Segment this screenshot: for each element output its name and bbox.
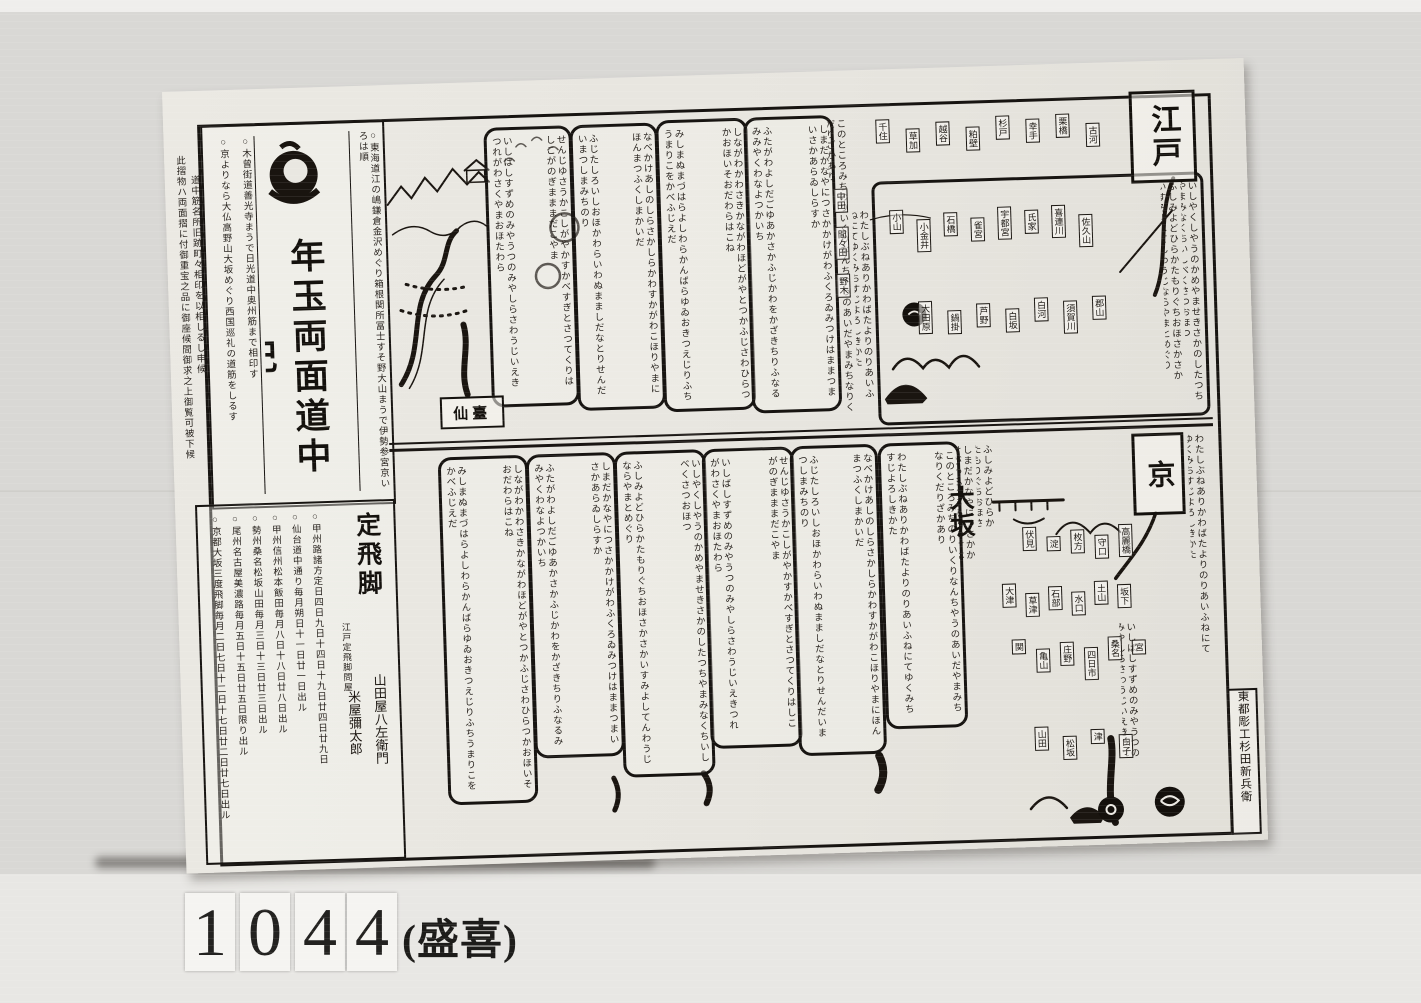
map-title: 年玉両面道中記 bbox=[261, 218, 338, 498]
station-box: 郡山 bbox=[1092, 295, 1107, 319]
route-column: しまだかなやにつさかかけがわふくろゐみつけはままつまいさかあらゐしらすか ふたが… bbox=[526, 452, 626, 759]
photo-of-historical-map: 此摺物ハ両面摺に付御重宝之品に御座候間御求之上御覧可被下候 道中筋名所旧跡町々相… bbox=[0, 0, 1421, 1003]
station-box-row: 山田 松坂 津 白子 bbox=[1034, 724, 1133, 761]
catalog-digit-tile: 4 bbox=[295, 893, 345, 971]
station-box: 石橋 bbox=[943, 212, 958, 236]
station-box: 白河 bbox=[1034, 297, 1049, 321]
catalog-digit-tile: 1 bbox=[185, 893, 235, 971]
route-column-text: しまだかなやにつさかかけがわふくろゐみつけはままつまいさかあらゐしらすか bbox=[588, 461, 619, 748]
station-box-row: 大津 草津 石部 水口 土山 坂下 bbox=[1002, 580, 1132, 618]
station-box: 野木 bbox=[836, 273, 851, 297]
station-box: 守口 bbox=[1094, 534, 1109, 558]
osaka-label: 大坂 bbox=[941, 485, 980, 574]
station-box: 氏家 bbox=[1024, 210, 1039, 234]
sendai-label: 仙臺 bbox=[453, 401, 492, 423]
route-column-text: なべかけあしのしらさかしらかわすかがわこほりやまにほんまつふくしまかいだ bbox=[629, 132, 659, 401]
station-box: 関 bbox=[1012, 639, 1026, 654]
courier-block: 定飛脚 江戸定飛脚問屋 ○京都大坂三度飛脚毎月二日七日十二日十七日廿二日廿七日出… bbox=[195, 499, 406, 865]
station-box: 小山 bbox=[889, 210, 904, 234]
route-column: なべかけあしのしらさかしらかわすかがわこほりやまにほんまつふくしまかいだ ふじた… bbox=[789, 444, 887, 757]
station-box: 草加 bbox=[906, 128, 921, 152]
route-column-text: ふたがわよしだごゆあかさかふじかわをかざきちりふなるみみやくわなよつかいち bbox=[749, 126, 780, 405]
station-box: 千住 bbox=[875, 119, 890, 143]
edo-label-box: 江戸 bbox=[1128, 90, 1197, 184]
station-box: 淀 bbox=[1046, 536, 1060, 551]
title-block: ○東海道江の嶋鎌倉金沢めぐり箱根関所冨士すそ野大山まうで伊勢参宮京いろは順 ○京… bbox=[200, 120, 396, 510]
station-box-row: 伏見 淀 枚方 守口 高麗橋 bbox=[1022, 524, 1133, 561]
station-box: 水口 bbox=[1071, 591, 1086, 615]
station-box: 越谷 bbox=[935, 121, 950, 145]
station-box: 杉戸 bbox=[995, 115, 1010, 139]
route-column-text: なべかけあしのしらさかしらかわすかがわこほりやまにほんまつふくしまかいだ bbox=[850, 453, 881, 746]
station-box-row: 千住 草加 越谷 粕壁 杉戸 幸手 栗橋 古河 bbox=[875, 113, 1100, 154]
edo-subframe: 小山 小金井 石橋 雀宮 宇都宮 氏家 喜連川 佐久山 大田原 鍋掛 芦野 白坂… bbox=[871, 171, 1211, 425]
catalog-digit-tile: 0 bbox=[240, 893, 290, 971]
station-box: 土山 bbox=[1094, 581, 1109, 605]
route-column: しながわかわさきかながわほどがやとつかふじさわひらつかおほいそおだわらはこね み… bbox=[438, 455, 539, 806]
route-column-text: みしまぬまづはらよしわらかんばらゆゐおきつえじりふちうまりこをかべふじえだ bbox=[444, 466, 476, 797]
catalog-annotation: (盛喜) bbox=[402, 906, 518, 967]
station-box: 枚方 bbox=[1070, 529, 1085, 553]
route-column-text: ふしみよどひらかたもりぐちおほさかさかいすみよしてんわうじならやまとめぐり bbox=[620, 460, 652, 769]
kyoto-label-box: 京 bbox=[1131, 432, 1186, 516]
station-box: 大津 bbox=[1002, 583, 1017, 607]
station-box: 宇都宮 bbox=[997, 206, 1012, 239]
route-column-text: ふたがわよしだごゆあかさかふじかわをかざきちりふなるみみやくわなよつかいち bbox=[532, 463, 563, 750]
title-side-note: ○東海道江の嶋鎌倉金沢めぐり箱根関所冨士すそ野大山まうで伊勢参宮京いろは順 bbox=[348, 130, 389, 491]
route-column-text: ふじたしろいしおほかわらいわぬまましだなとりせんだいまつしまみちのり bbox=[796, 455, 827, 748]
route-column: なべかけあしのしらさかしらかわすかがわこほりやまにほんまつふくしまかいだ ふじた… bbox=[569, 122, 666, 411]
station-box-row: 関 亀山 庄野 四日市 桑名 宮 bbox=[1012, 635, 1147, 682]
route-text: ふしみよどひらかたもりぐちおほさかさかいすみよしてんわうじならやまとめぐり bbox=[975, 444, 994, 536]
station-box: 桑名 bbox=[1108, 636, 1123, 660]
route-text: ふしみよどひらかたもりぐちおほさかさかいすみよしてんわうじならやまとめぐり bbox=[1160, 181, 1182, 381]
station-box: 間々田 bbox=[835, 227, 850, 260]
station-box: 白子 bbox=[1119, 734, 1134, 758]
kyoto-label: 京 bbox=[1138, 459, 1179, 488]
station-box: 津 bbox=[1090, 729, 1104, 744]
station-box: 大田原 bbox=[918, 301, 933, 334]
station-box: 石部 bbox=[1048, 586, 1063, 610]
station-box: 喜連川 bbox=[1051, 205, 1066, 238]
route-text: いしやくしやうのかめやませきさかのしたつちやまみなくちいしべくさつおほつ bbox=[1180, 181, 1203, 405]
route-column: しまだかなやにつさかかけがわふくろゐみつけはままつまいさかあらゐしらすか ふたが… bbox=[743, 115, 842, 414]
edo-label: 江戸 bbox=[1140, 103, 1186, 170]
station-box: 鍋掛 bbox=[947, 310, 962, 334]
station-box: 四日市 bbox=[1084, 647, 1099, 680]
station-box: 幸手 bbox=[1025, 118, 1040, 142]
route-column-text: わたしぶねありかわばたよりのりあいふねにてゆくみちすじよろしきかた bbox=[884, 452, 914, 721]
station-box: 須賀川 bbox=[1063, 300, 1078, 333]
catalog-digit: 4 bbox=[303, 893, 337, 972]
station-box: 山田 bbox=[1034, 726, 1049, 750]
colophon-text: 東都彫工杉田新兵衛 bbox=[1234, 690, 1254, 803]
title-crest-icon bbox=[260, 134, 326, 214]
catalog-digit-tile: 4 bbox=[347, 893, 397, 971]
route-column: せんじゆさうかこしがやかすかべすぎとさつてくりはしこがのぎまままだこやま いしば… bbox=[483, 125, 580, 408]
station-box: 芦野 bbox=[976, 303, 991, 327]
map-sheet: 此摺物ハ両面摺に付御重宝之品に御座候間御求之上御覧可被下候 道中筋名所旧跡町々相… bbox=[162, 58, 1268, 874]
station-box-row: 大田原 鍋掛 芦野 白坂 白河 須賀川 郡山 bbox=[918, 295, 1107, 338]
route-column-text: いしばしすずめのみやうつのみやしらさわうじいえきつれがわさくやまおほたわら bbox=[708, 457, 739, 740]
courier-name: 米屋彌太郎 bbox=[343, 690, 368, 851]
route-column-text: いしばしすずめのみやうつのみやしらさわうじいえきつれがわさくやまおほたわら bbox=[490, 136, 520, 399]
station-box: 粕壁 bbox=[965, 126, 980, 150]
route-column-text: せんじゆさうかこしがやかすかべすぎとさつてくりはしこがのぎまままだこやま bbox=[544, 134, 574, 397]
photo-top-margin bbox=[0, 0, 1421, 12]
station-box: 高麗橋 bbox=[1118, 524, 1133, 557]
catalog-digit: 4 bbox=[355, 893, 389, 972]
route-column-text: みしまぬまづはらよしわらかんばらゆゐおきつえじりふちうまりこをかべふじえだ bbox=[661, 129, 692, 404]
station-box: 松坂 bbox=[1063, 736, 1078, 760]
colophon-strip: 東都彫工杉田新兵衛 bbox=[1227, 688, 1262, 835]
station-box: 庄野 bbox=[1060, 642, 1075, 666]
courier-name: 山田屋八左衛門 bbox=[368, 673, 394, 854]
catalog-digit: 0 bbox=[248, 893, 282, 972]
station-box: 亀山 bbox=[1036, 648, 1051, 672]
station-box: 古河 bbox=[1085, 123, 1100, 147]
station-box: 白坂 bbox=[1005, 308, 1020, 332]
station-box: 坂下 bbox=[1117, 584, 1132, 608]
sendai-label-box: 仙臺 bbox=[440, 395, 505, 429]
courier-header: 定飛脚 bbox=[349, 511, 387, 630]
station-box: 宮 bbox=[1132, 639, 1146, 654]
route-column-text: ふじたしろいしおほかわらいわぬまましだなとりせんだいまつしまみちのり bbox=[576, 133, 606, 402]
station-box: 小金井 bbox=[916, 219, 931, 252]
route-column: いしやくしやうのかめやませきさかのしたつちやまみなくちいしべくさつおほつ ふしみ… bbox=[614, 449, 716, 778]
station-box: 中田 bbox=[833, 189, 848, 213]
station-box: 雀宮 bbox=[970, 217, 985, 241]
station-box: 栗橋 bbox=[1055, 114, 1070, 138]
route-column: せんじゆさうかこしがやかすかべすぎとさつてくりはしこがのぎまままだこやま いしば… bbox=[701, 446, 802, 749]
station-box: 伏見 bbox=[1022, 527, 1037, 551]
station-box-row: 小山 小金井 石橋 雀宮 宇都宮 氏家 喜連川 佐久山 bbox=[889, 204, 1093, 253]
station-box: 草津 bbox=[1025, 593, 1040, 617]
catalog-digit: 1 bbox=[193, 893, 227, 972]
route-column: しながわかわさきかながわほどがやとつかふじさわひらつかおほいそおだわらはこね み… bbox=[655, 118, 756, 413]
station-box: 佐久山 bbox=[1078, 214, 1093, 247]
